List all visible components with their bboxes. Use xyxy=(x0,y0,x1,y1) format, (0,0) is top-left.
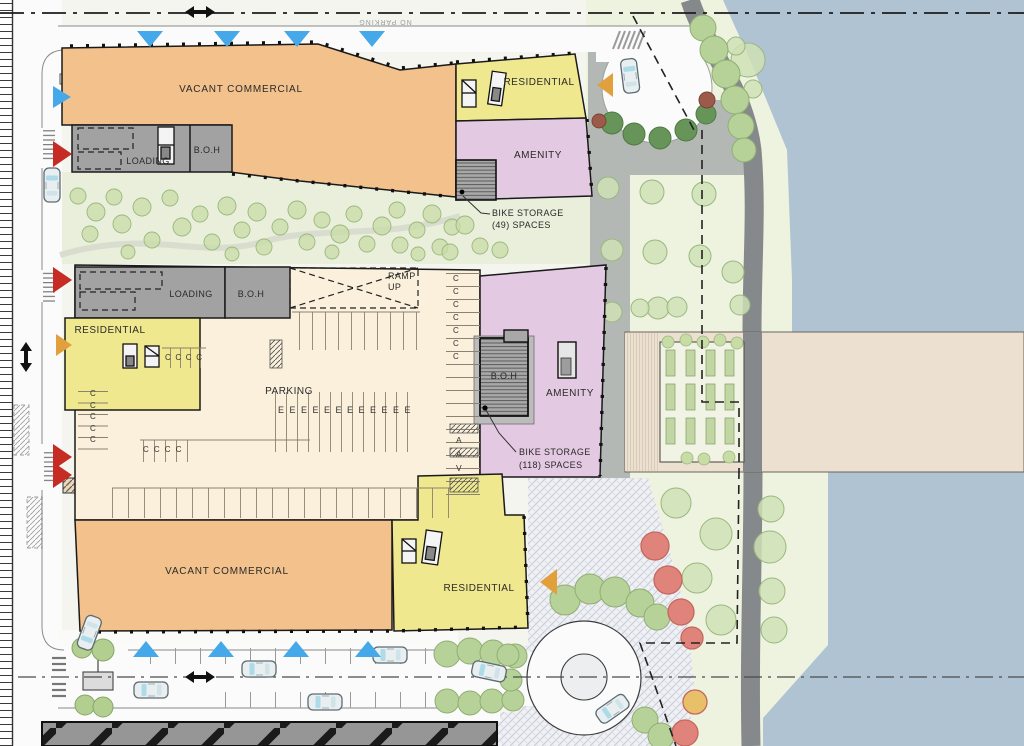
parking-label: PARKING xyxy=(258,386,320,398)
sidewalk-mid xyxy=(58,630,458,646)
stalls-e-row: E E E E E E E E E E E E xyxy=(278,404,411,416)
loading-top-label: LOADING xyxy=(118,155,178,167)
pier-path xyxy=(743,332,762,472)
stalls-c-row-lower: C C C C xyxy=(143,444,182,456)
residential-top-label: RESIDENTIAL xyxy=(489,77,589,89)
amenity-mid-label: AMENITY xyxy=(520,388,620,400)
street-left xyxy=(13,0,62,746)
stalls-c-col-right: C C C C C C C xyxy=(453,272,459,363)
site-plan: NO PARKING VACANT COMMERCIAL LOADING B.O… xyxy=(0,0,1024,746)
stalls-c-col-left: C C C C C xyxy=(90,388,96,446)
bike-storage-118-label: BIKE STORAGE (118) SPACES xyxy=(519,446,591,471)
promenade-path-south xyxy=(750,470,753,746)
amenity-top-label: AMENITY xyxy=(488,150,588,162)
loading-mid-label: LOADING xyxy=(161,288,221,300)
bike-storage-49-label: BIKE STORAGE (49) SPACES xyxy=(492,207,564,231)
commercial-top-label: VACANT COMMERCIAL xyxy=(141,84,341,96)
ramp-up-label: RAMP UP xyxy=(388,271,416,293)
boh-core-label: B.O.H xyxy=(475,370,533,382)
residential-bottom-label: RESIDENTIAL xyxy=(429,583,529,595)
boh-mid-label: B.O.H xyxy=(221,288,281,300)
no-parking-note: NO PARKING xyxy=(340,15,430,27)
boh-top-label: B.O.H xyxy=(178,144,236,156)
roundabout xyxy=(527,621,641,735)
pier-boardwalk xyxy=(625,333,659,471)
existing-building xyxy=(42,722,497,746)
parcel-edge-ticks xyxy=(0,0,13,746)
commercial-bottom-label: VACANT COMMERCIAL xyxy=(127,566,327,578)
stalls-av-col: A A V xyxy=(456,433,462,475)
community-garden xyxy=(660,334,744,465)
stalls-c-row-upper: C C C C xyxy=(165,352,202,364)
residential-mid-label: RESIDENTIAL xyxy=(60,325,160,337)
